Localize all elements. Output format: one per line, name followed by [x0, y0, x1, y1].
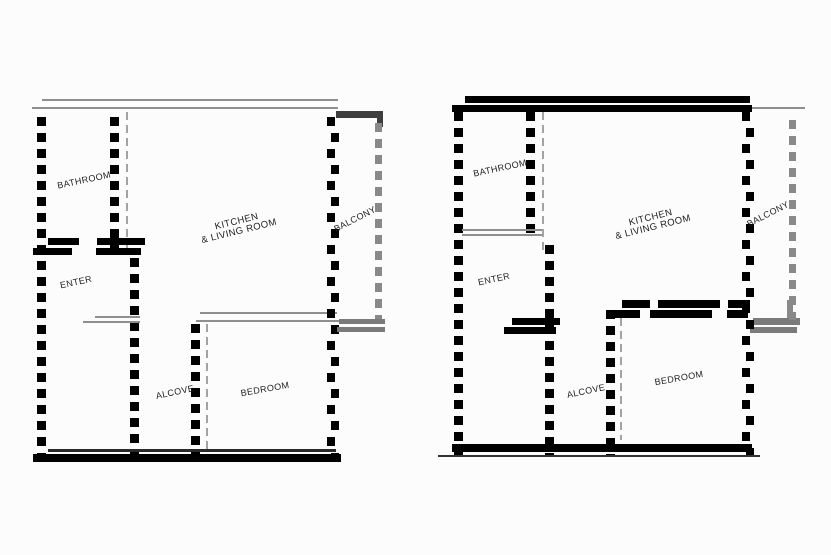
balcony-outer-wall	[789, 120, 796, 320]
bedroom-top-wall-segment	[622, 300, 650, 308]
alcove-guide-line	[620, 318, 622, 440]
bathroom-bottom-line	[462, 234, 542, 236]
room-label-bedroom: BEDROOM	[240, 380, 290, 398]
exterior-wall-bottom	[33, 454, 341, 462]
exterior-wall-right	[742, 112, 754, 455]
alcove-right-wall	[606, 310, 615, 455]
room-label-alcove: ALCOVE	[155, 383, 195, 401]
room-label-kitchen-living: KITCHEN & LIVING ROOM	[612, 204, 692, 242]
door-swing-line	[95, 316, 140, 318]
balcony-top-line	[752, 107, 805, 109]
bottom-line-outer	[438, 455, 760, 457]
bedroom-top-line	[196, 320, 339, 322]
balcony-top-wall	[336, 111, 383, 118]
room-label-bathroom: BATHROOM	[472, 157, 527, 178]
bathroom-guide-line	[542, 112, 544, 250]
room-label-balcony: BALCONY	[332, 204, 377, 234]
door-wall-segment	[504, 327, 556, 334]
room-label-bathroom: BATHROOM	[56, 169, 111, 190]
balcony-bottom-wall	[750, 327, 797, 333]
balcony-bottom-wall	[339, 319, 385, 324]
exterior-wall-top	[465, 96, 750, 103]
room-label-bedroom: BEDROOM	[654, 369, 704, 387]
top-line-outer	[42, 99, 338, 101]
floor-plans-canvas: BATHROOM ENTER KITCHEN & LIVING ROOM BAL…	[0, 0, 831, 555]
exterior-wall-left	[454, 112, 463, 455]
room-label-enter: ENTER	[477, 271, 511, 288]
balcony-outer-wall	[375, 123, 382, 322]
bedroom-top-wall-segment	[606, 310, 640, 318]
door-wall-segment	[33, 248, 72, 255]
door-wall-segment	[96, 248, 141, 255]
bathroom-right-wall	[526, 112, 535, 235]
room-label-alcove: ALCOVE	[566, 382, 606, 400]
balcony-bottom-wall	[337, 327, 385, 332]
door-wall-segment	[512, 318, 560, 325]
bathroom-right-wall	[110, 117, 119, 250]
bathroom-guide-line	[126, 112, 128, 252]
bedroom-top-wall-segment	[650, 310, 712, 318]
exterior-wall-top	[452, 105, 752, 112]
door-wall-segment	[48, 238, 79, 245]
exterior-wall-bottom	[452, 444, 752, 452]
bedroom-top-line	[200, 312, 337, 314]
enter-right-wall	[545, 245, 554, 455]
exterior-wall-left	[37, 117, 46, 460]
door-swing-line	[83, 321, 140, 323]
door-wall-segment	[97, 238, 145, 245]
alcove-guide-line	[206, 324, 208, 454]
room-label-enter: ENTER	[59, 274, 93, 291]
room-label-kitchen-living: KITCHEN & LIVING ROOM	[198, 208, 278, 246]
bathroom-bottom-line	[462, 229, 542, 231]
top-line-inner	[32, 107, 338, 109]
bottom-line-inner	[48, 449, 336, 452]
bedroom-top-wall-segment	[658, 300, 720, 308]
exterior-wall-right	[327, 117, 339, 460]
enter-right-wall	[130, 258, 139, 455]
